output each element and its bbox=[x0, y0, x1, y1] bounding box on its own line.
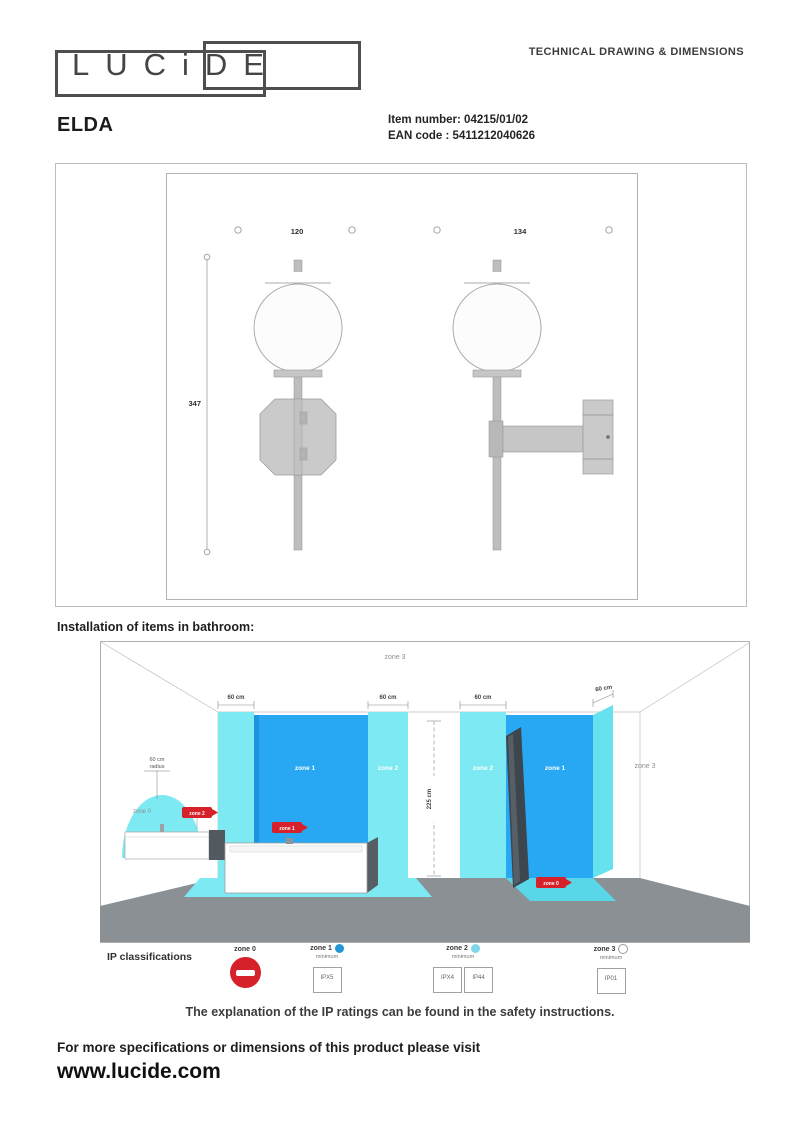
zone2-label-shower: zone 2 bbox=[473, 765, 494, 772]
item-number-value: 04215/01/02 bbox=[464, 114, 528, 126]
ip-classifications-title: IP classifications bbox=[107, 951, 192, 963]
radius-label-value: 60 cm bbox=[150, 757, 165, 763]
legend-zone2-min: minimum bbox=[430, 954, 496, 960]
legend-zone0-label: zone 0 bbox=[222, 946, 268, 953]
legend-zone3-label: zone 3 bbox=[594, 946, 616, 953]
zone2-label-bath: zone 2 bbox=[378, 765, 399, 772]
technical-drawing-frame: 120 134 347 bbox=[166, 173, 638, 600]
no-entry-icon bbox=[230, 957, 261, 988]
ip-note: The explanation of the IP ratings can be… bbox=[0, 1005, 800, 1019]
legend-zone3: zone 3 minimum IP01 bbox=[582, 944, 640, 994]
technical-drawing-svg: 120 134 347 bbox=[167, 174, 637, 599]
ip-box-zone2-b: IP44 bbox=[464, 967, 493, 993]
shower-scene: 60 cm 60 cm zone 2 zone 1 zone 0 bbox=[460, 685, 616, 901]
svg-text:zone 2: zone 2 bbox=[189, 811, 205, 817]
ean-value: 5411212040626 bbox=[453, 130, 536, 142]
legend-zone3-min: minimum bbox=[582, 955, 640, 961]
zone0-basin-label: zone 0 bbox=[133, 809, 152, 815]
dim-side-depth: 134 bbox=[514, 227, 527, 236]
legend-zone0: zone 0 bbox=[222, 946, 268, 988]
wall-arm bbox=[503, 426, 583, 452]
zone3-ceiling-label: zone 3 bbox=[384, 654, 405, 661]
dim-front-width: 120 bbox=[291, 227, 304, 236]
ean-row: EAN code : 5411212040626 bbox=[388, 128, 535, 144]
ip-box-zone1: IPX5 bbox=[313, 967, 342, 993]
height-225-label: 225 cm bbox=[427, 789, 433, 809]
sixty-cm-label-3: 60 cm bbox=[474, 695, 491, 701]
zone1-label-bath: zone 1 bbox=[295, 765, 316, 772]
svg-text:zone 1: zone 1 bbox=[279, 826, 295, 832]
bathtub bbox=[225, 837, 378, 893]
legend-zone1-min: minimum bbox=[298, 954, 356, 960]
document-title: TECHNICAL DRAWING & DIMENSIONS bbox=[529, 46, 744, 58]
legend-zone1: zone 1 minimum IPX5 bbox=[298, 944, 356, 993]
ip-box-zone3: IP01 bbox=[597, 968, 626, 994]
footer-text: For more specifications or dimensions of… bbox=[57, 1040, 480, 1055]
sixty-cm-label-2: 60 cm bbox=[379, 695, 396, 701]
bathroom-diagram-svg: zone 3 zone 3 60 cm 60 cm zone 1 zone 2 … bbox=[100, 641, 750, 943]
height-dimension: 347 bbox=[188, 254, 209, 555]
product-name: ELDA bbox=[57, 114, 113, 137]
sixty-cm-label-1: 60 cm bbox=[227, 695, 244, 701]
zone1-panel-bath bbox=[254, 715, 368, 845]
item-number-row: Item number: 04215/01/02 bbox=[388, 112, 535, 128]
lamp-front-view bbox=[254, 260, 342, 550]
ip-box-zone2-a: IPX4 bbox=[433, 967, 462, 993]
legend-zone2-label: zone 2 bbox=[446, 945, 468, 952]
zone2-strip-shower bbox=[460, 712, 506, 878]
zone1-label-shower: zone 1 bbox=[545, 765, 566, 772]
logo-text: LUCiDE bbox=[72, 47, 280, 83]
radius-label-word: radius bbox=[150, 764, 165, 770]
svg-text:zone 0: zone 0 bbox=[543, 881, 559, 887]
dim-height: 347 bbox=[188, 399, 201, 408]
brand-logo: LUCiDE bbox=[55, 36, 365, 96]
product-codes: Item number: 04215/01/02 EAN code : 5411… bbox=[388, 112, 535, 144]
legend-zone2: zone 2 minimum IPX4 IP44 bbox=[430, 944, 496, 993]
page: LUCiDE TECHNICAL DRAWING & DIMENSIONS EL… bbox=[0, 0, 800, 1133]
technical-drawing-panel: 120 134 347 bbox=[55, 163, 747, 607]
legend-zone1-label: zone 1 bbox=[310, 945, 332, 952]
ean-label: EAN code : bbox=[388, 130, 449, 142]
item-number-label: Item number: bbox=[388, 114, 461, 126]
zone2-dot-icon bbox=[471, 944, 480, 953]
zone1-dot-icon bbox=[335, 944, 344, 953]
site-url[interactable]: www.lucide.com bbox=[57, 1060, 221, 1084]
bathroom-section-heading: Installation of items in bathroom: bbox=[57, 620, 254, 634]
zone2-fold-corner bbox=[593, 705, 613, 878]
zone3-wall-label: zone 3 bbox=[634, 763, 655, 770]
lamp-side-view bbox=[453, 260, 613, 550]
zone3-ring-icon bbox=[618, 944, 628, 954]
